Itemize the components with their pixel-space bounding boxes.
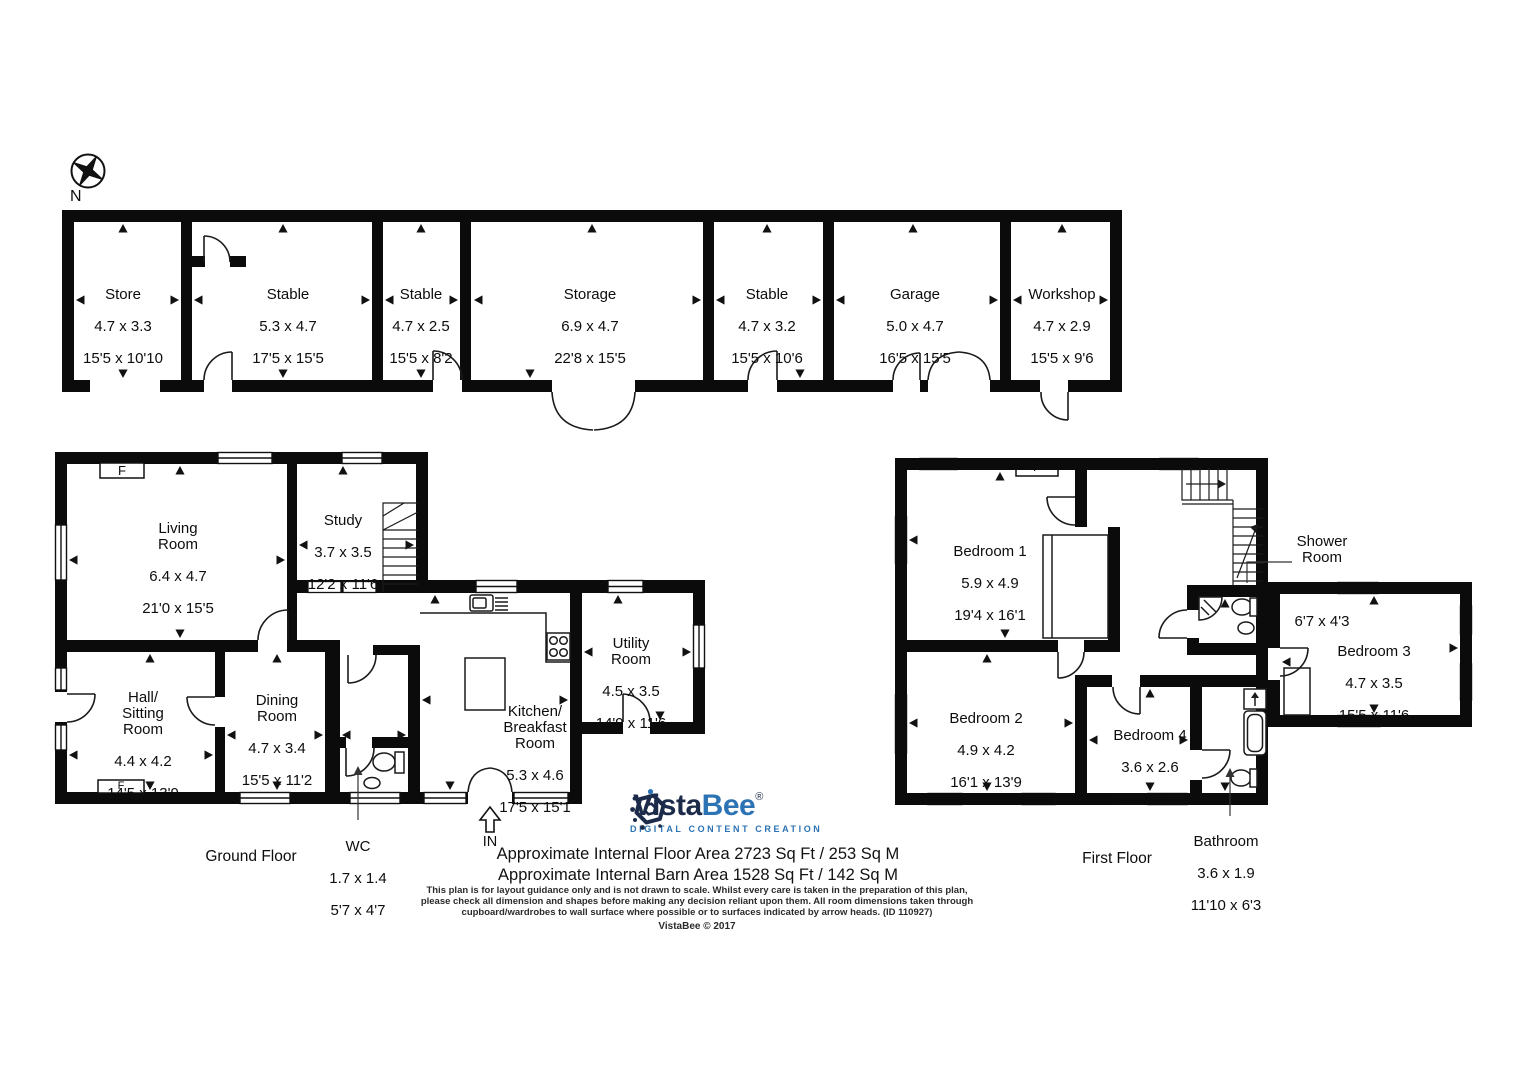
copyright-text: VistaBee © 2017 <box>417 921 977 932</box>
room-dim-metric: 4.5 x 3.5 <box>596 684 667 700</box>
room-dim-metric: 4.7 x 3.2 <box>731 319 803 335</box>
room-name: Kitchen/ Breakfast Room <box>499 704 571 752</box>
room-dim-imperial: 15'5 x 10'6 <box>731 351 803 367</box>
fireplace-mark-hall: F <box>118 779 125 793</box>
room-name: Storage <box>554 287 626 303</box>
room-dim-imperial: 5'7 x 4'7 <box>329 903 387 919</box>
room-name: Bedroom 2 <box>949 711 1022 727</box>
room-label-storage: Storage 6.9 x 4.7 22'8 x 15'5 <box>554 271 626 383</box>
compass-icon <box>72 155 105 188</box>
room-dim-metric: 4.7 x 3.3 <box>83 319 163 335</box>
room-name: WC <box>329 839 387 855</box>
room-dim-imperial: 17'5 x 15'1 <box>499 800 571 816</box>
entrance-arrow-icon <box>480 807 500 832</box>
disclaimer-text: This plan is for layout guidance only an… <box>417 886 977 918</box>
room-label-workshop: Workshop 4.7 x 2.9 15'5 x 9'6 <box>1028 271 1095 383</box>
room-dim-imperial: 17'5 x 15'5 <box>252 351 324 367</box>
room-dim-metric: 5.3 x 4.7 <box>252 319 324 335</box>
room-dim-metric: 4.7 x 2.5 <box>389 319 452 335</box>
room-dim-metric: 4.7 x 3.5 <box>1337 676 1410 692</box>
room-name: Stable <box>252 287 324 303</box>
logo-registered-mark: ® <box>755 791 763 803</box>
room-label-stable-1: Stable 5.3 x 4.7 17'5 x 15'5 <box>252 271 324 383</box>
room-dim-metric: 2.0 x 1.3 <box>1293 582 1351 598</box>
fireplace-mark-living: F <box>118 464 126 478</box>
room-label-living-room: Living Room 6.4 x 4.7 21'0 x 15'5 <box>142 505 214 633</box>
room-dim-imperial: 16'5 x 15'5 <box>879 351 951 367</box>
room-dim-imperial: 15'5 x 11'2 <box>242 773 313 789</box>
room-dim-metric: 3.6 x 2.6 <box>1113 760 1186 776</box>
room-label-study: Study 3.7 x 3.5 12'2 x 11'6 <box>308 497 379 609</box>
room-dim-metric: 6.4 x 4.7 <box>142 569 214 585</box>
room-name: Stable <box>389 287 452 303</box>
room-name: Garage <box>879 287 951 303</box>
room-name: Living Room <box>142 521 214 553</box>
room-name: Store <box>83 287 163 303</box>
room-dim-metric: 4.7 x 3.4 <box>242 741 313 757</box>
room-name: Stable <box>731 287 803 303</box>
room-dim-metric: 6.9 x 4.7 <box>554 319 626 335</box>
room-name: Study <box>308 513 379 529</box>
room-label-shower-room: Shower Room 2.0 x 1.3 6'7 x 4'3 <box>1293 518 1351 646</box>
room-label-wc: WC 1.7 x 1.4 5'7 x 4'7 <box>329 823 387 935</box>
compass-north-label: N <box>70 188 82 206</box>
room-label-bedroom-1: Bedroom 1 5.9 x 4.9 19'4 x 16'1 <box>953 528 1026 640</box>
room-dim-imperial: 11'10 x 6'3 <box>1191 898 1262 914</box>
room-name: Shower Room <box>1293 534 1351 566</box>
room-label-bedroom-4: Bedroom 4 3.6 x 2.6 11'10 x 8'6 <box>1113 712 1186 824</box>
vistabee-hex-icon <box>630 789 670 833</box>
room-dim-imperial: 16'1 x 13'9 <box>949 775 1022 791</box>
room-label-stable-2: Stable 4.7 x 2.5 15'5 x 8'2 <box>389 271 452 383</box>
stairs-first <box>1182 468 1263 585</box>
ground-floor-title: Ground Floor <box>205 848 296 866</box>
room-dim-imperial: 14'9 x 11'6 <box>596 716 667 732</box>
room-dim-imperial: 19'4 x 16'1 <box>953 608 1026 624</box>
floor-plan-page: N Store 4.7 x 3.3 15'5 x 10'10 Stable 5.… <box>0 0 1528 1080</box>
room-label-hall-sitting-room: Hall/ Sitting Room 4.4 x 4.2 14'5 x 13'9 <box>107 674 179 818</box>
room-label-store: Store 4.7 x 3.3 15'5 x 10'10 <box>83 271 163 383</box>
first-floor-title: First Floor <box>1082 850 1152 868</box>
room-name: Workshop <box>1028 287 1095 303</box>
room-label-bedroom-3: Bedroom 3 4.7 x 3.5 15'5 x 11'6 <box>1337 628 1410 740</box>
room-dim-metric: 4.9 x 4.2 <box>949 743 1022 759</box>
room-dim-imperial: 22'8 x 15'5 <box>554 351 626 367</box>
room-name: Bedroom 4 <box>1113 728 1186 744</box>
room-dim-imperial: 12'2 x 11'6 <box>308 577 379 593</box>
room-dim-imperial: 21'0 x 15'5 <box>142 601 214 617</box>
barn-area-text: Approximate Internal Barn Area 1528 Sq F… <box>418 866 978 885</box>
logo-bee-text: Bee <box>702 789 756 822</box>
room-name: Dining Room <box>242 693 313 725</box>
stairs-ground <box>383 503 418 592</box>
room-dim-imperial: 15'5 x 8'2 <box>389 351 452 367</box>
room-label-garage: Garage 5.0 x 4.7 16'5 x 15'5 <box>879 271 951 383</box>
room-dim-metric: 5.0 x 4.7 <box>879 319 951 335</box>
room-name: Hall/ Sitting Room <box>107 690 179 738</box>
room-label-utility-room: Utility Room 4.5 x 3.5 14'9 x 11'6 <box>596 620 667 748</box>
room-label-kitchen-breakfast-room: Kitchen/ Breakfast Room 5.3 x 4.6 17'5 x… <box>499 688 571 832</box>
room-dim-metric: 4.7 x 2.9 <box>1028 319 1095 335</box>
shower-room-fixtures <box>1199 597 1257 634</box>
floor-area-text: Approximate Internal Floor Area 2723 Sq … <box>418 845 978 864</box>
room-dim-imperial: 15'5 x 10'10 <box>83 351 163 367</box>
room-dim-metric: 1.7 x 1.4 <box>329 871 387 887</box>
room-dim-imperial: 15'5 x 9'6 <box>1028 351 1095 367</box>
room-name: Bedroom 3 <box>1337 644 1410 660</box>
room-dim-metric: 3.6 x 1.9 <box>1191 866 1262 882</box>
room-dim-imperial: 11'10 x 8'6 <box>1113 792 1186 808</box>
room-dim-imperial: 15'5 x 11'6 <box>1337 708 1410 724</box>
room-dim-metric: 3.7 x 3.5 <box>308 545 379 561</box>
wc-fixtures <box>364 752 404 789</box>
room-name: Utility Room <box>596 636 667 668</box>
room-name: Bedroom 1 <box>953 544 1026 560</box>
vistabee-logo: VistaBee® DIGITAL CONTENT CREATION <box>630 789 820 834</box>
room-label-bathroom: Bathroom 3.6 x 1.9 11'10 x 6'3 <box>1191 818 1262 930</box>
room-dim-metric: 4.4 x 4.2 <box>107 754 179 770</box>
room-label-bedroom-2: Bedroom 2 4.9 x 4.2 16'1 x 13'9 <box>949 695 1022 807</box>
room-label-stable-3: Stable 4.7 x 3.2 15'5 x 10'6 <box>731 271 803 383</box>
room-label-dining-room: Dining Room 4.7 x 3.4 15'5 x 11'2 <box>242 677 313 805</box>
room-dim-metric: 5.3 x 4.6 <box>499 768 571 784</box>
fireplace-mark-bedroom1: F <box>1033 460 1041 474</box>
room-name: Bathroom <box>1191 834 1262 850</box>
room-dim-metric: 5.9 x 4.9 <box>953 576 1026 592</box>
